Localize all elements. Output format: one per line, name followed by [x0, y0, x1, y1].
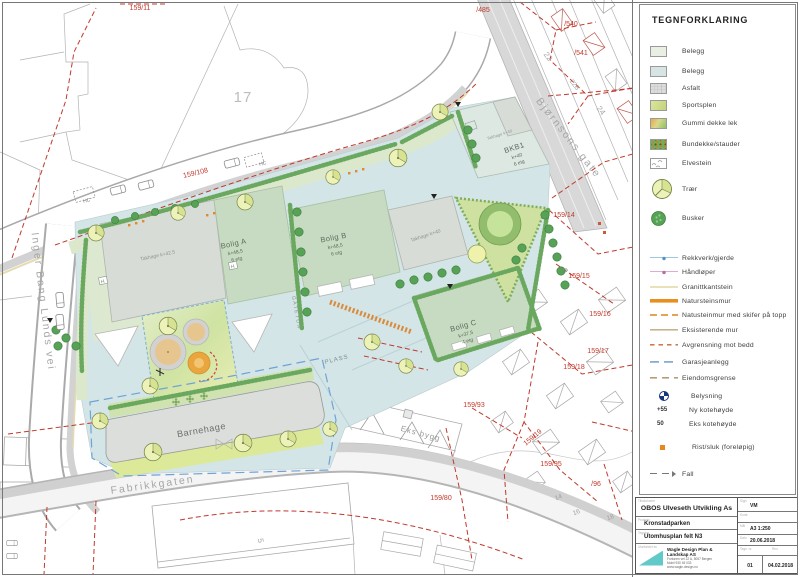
legend-item-belysning: Belysning [650, 389, 722, 403]
legend-item-traer: Trær [650, 177, 697, 201]
legend-item-asfalt: Asfalt [650, 81, 700, 95]
title-block: Tiltakshaver OBOS Ulveseth Utvikling As … [635, 497, 798, 574]
revision-cell: 01 04.02.2018 [738, 556, 798, 573]
legend-panel: TEGNFORKLARING Belegg Belegg Asfalt Spor… [632, 0, 800, 577]
swatch-gummi-icon [650, 118, 667, 129]
parcel-label: 159/95 [540, 461, 562, 468]
parcel-label: /96 [591, 481, 601, 488]
legend-item-granitt: Granittkantstein [650, 280, 733, 294]
swatch-asfalt-icon [650, 83, 667, 94]
legend-item-eksmur: Eksisterende mur [650, 323, 738, 337]
swatch-elvestein-icon [650, 158, 667, 169]
garasjeanlegg-line-icon [650, 359, 678, 366]
sign-cell: Sign. VM [738, 498, 798, 512]
parcel-label: 159/11 [130, 5, 151, 12]
title-block-firm-cell: Utarbeidet av Wagle Design Plan & Landsk… [636, 544, 737, 573]
check-cell: Kontr. [738, 512, 798, 523]
dwgno-value: 01 [738, 556, 763, 573]
legend-item-handloper: Håndløper [650, 265, 716, 279]
skifer-line-icon [650, 312, 678, 319]
project-name: Kronstadparken [636, 517, 737, 527]
legend-item-belegg-1: Belegg [650, 44, 704, 58]
legend-item-skifer: Natusteinmur med skifer på topp [650, 308, 786, 322]
drawing-title: Utomhusplan felt N3 [636, 530, 737, 540]
belysning-icon [659, 391, 669, 401]
legend-item-elvestein: Elvestein [650, 156, 711, 170]
swatch-belegg-light-icon [650, 46, 667, 57]
legend-item-rekkverk: Rekkverk/gjerde [650, 251, 734, 265]
date-value: 20.06.2018 [738, 535, 798, 544]
legend-item-avgrensning: Avgrensning mot bedd [650, 338, 754, 352]
rist-sluk-icon [660, 445, 665, 450]
house-number-17: 17 [234, 89, 253, 106]
parcel-label: 159/93 [463, 402, 485, 409]
legend-item-garasjeanlegg: Garasjeanlegg [650, 355, 729, 369]
site-plan-map: 159/11 /485 /540 /541 159/108 159/14 159… [0, 0, 632, 577]
legend-item-busker: Busker [650, 209, 704, 227]
firm-web: www.wagle-design.no [667, 565, 735, 569]
parcel-label: 159/80 [430, 495, 452, 502]
parcel-label: /541 [574, 50, 588, 57]
swatch-sportsplen-icon [650, 100, 667, 111]
title-block-project-cell: Prosjekt Kronstadparken [636, 517, 737, 530]
parcel-label: 159/14 [553, 212, 575, 219]
legend-item-natursteinsmur: Natursteinsmur [650, 294, 731, 308]
eksisterende-mur-line-icon [650, 327, 678, 334]
parcel-label: 159/17 [587, 348, 609, 355]
map-canvas: 159/11 /485 /540 /541 159/108 159/14 159… [0, 0, 632, 577]
parcel-label: /540 [564, 21, 578, 28]
title-block-drawing-cell: Tegning Utomhusplan felt N3 [636, 530, 737, 544]
parcel-label: /485 [476, 7, 490, 14]
swatch-belegg-blue-icon [650, 66, 667, 77]
legend-item-eks-kote: 50 Eks kotehøyde [650, 417, 737, 431]
swatch-bundekke-icon [650, 139, 667, 150]
legend-item-ny-kote: +55 Ny kotehøyde [650, 403, 733, 417]
legend-item-eiendomsgrense: Eiendomsgrense [650, 371, 736, 385]
legend-item-gummi: Gummi dekke lek [650, 116, 738, 130]
date-cell: Dato 20.06.2018 [738, 535, 798, 546]
legend-item-belegg-2: Belegg [650, 64, 704, 78]
scale-cell: Mål A3 1:250 [738, 523, 798, 535]
ny-kote-symbol: +55 [657, 407, 667, 413]
fall-arrow-icon [650, 472, 672, 477]
legend-item-bundekke: Bundekke/stauder [650, 137, 740, 151]
legend-item-fall: Fall [650, 467, 694, 481]
parcel-label: 159/16 [589, 311, 611, 318]
firm-name: Wagle Design Plan & Landskap AS [667, 547, 735, 557]
legend-item-rist-sluk: Rist/sluk (foreløpig) [650, 440, 755, 454]
rev-date-value: 04.02.2018 [763, 556, 798, 573]
rekkverk-line-icon [650, 255, 678, 262]
plan-sheet: 159/11 /485 /540 /541 159/108 159/14 159… [0, 0, 800, 577]
legend-box: TEGNFORKLARING Belegg Belegg Asfalt Spor… [639, 4, 796, 495]
legend-label: Belegg [682, 48, 704, 55]
eiendomsgrense-line-icon [650, 375, 678, 382]
title-block-client-cell: Tiltakshaver OBOS Ulveseth Utvikling As [636, 498, 737, 517]
dwgno-header-cell: Tegn. nr. Rev. [738, 546, 798, 556]
granitt-line-icon [650, 284, 678, 291]
parcel-label: 159/18 [563, 364, 585, 371]
avgrensning-line-icon [650, 342, 678, 349]
legend-item-sportsplen: Sportsplen [650, 98, 717, 112]
wagle-logo [639, 551, 663, 566]
legend-title: TEGNFORKLARING [652, 15, 748, 25]
parcel-label: 159/15 [568, 273, 590, 280]
tree-icon [650, 177, 674, 201]
bush-icon [650, 210, 667, 227]
natursteinsmur-line-icon [650, 298, 678, 305]
eks-kote-symbol: 50 [657, 421, 664, 427]
scale-value: A3 1:250 [738, 523, 798, 532]
handloper-line-icon [650, 269, 678, 276]
